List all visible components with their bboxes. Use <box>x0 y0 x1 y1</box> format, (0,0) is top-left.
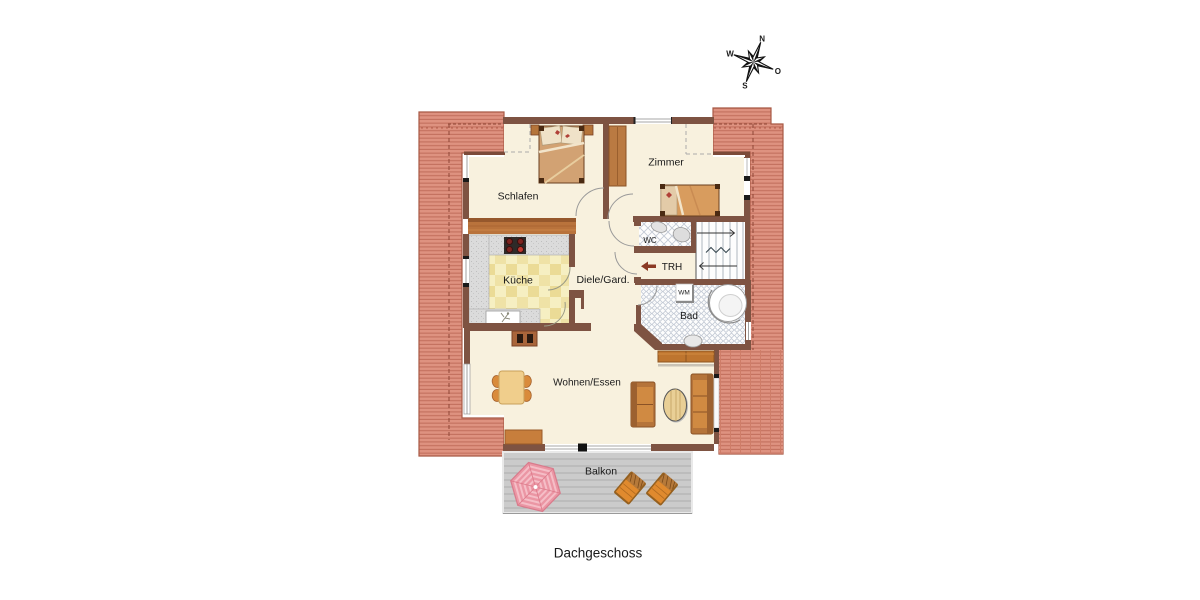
svg-text:Diele/Gard.: Diele/Gard. <box>576 274 629 286</box>
svg-text:Bad: Bad <box>680 311 698 322</box>
svg-text:S: S <box>742 82 748 91</box>
svg-text:N: N <box>759 35 765 44</box>
svg-text:W: W <box>726 49 734 58</box>
svg-text:Küche: Küche <box>503 275 533 287</box>
svg-text:WM: WM <box>678 290 690 297</box>
svg-text:Balkon: Balkon <box>585 466 617 478</box>
svg-text:Schlafen: Schlafen <box>498 191 539 203</box>
svg-text:O: O <box>775 67 781 76</box>
svg-text:WC: WC <box>643 236 657 245</box>
svg-text:Zimmer: Zimmer <box>648 157 684 169</box>
svg-text:Dachgeschoss: Dachgeschoss <box>554 546 643 561</box>
svg-text:Wohnen/Essen: Wohnen/Essen <box>553 378 621 389</box>
svg-text:TRH: TRH <box>662 262 683 273</box>
